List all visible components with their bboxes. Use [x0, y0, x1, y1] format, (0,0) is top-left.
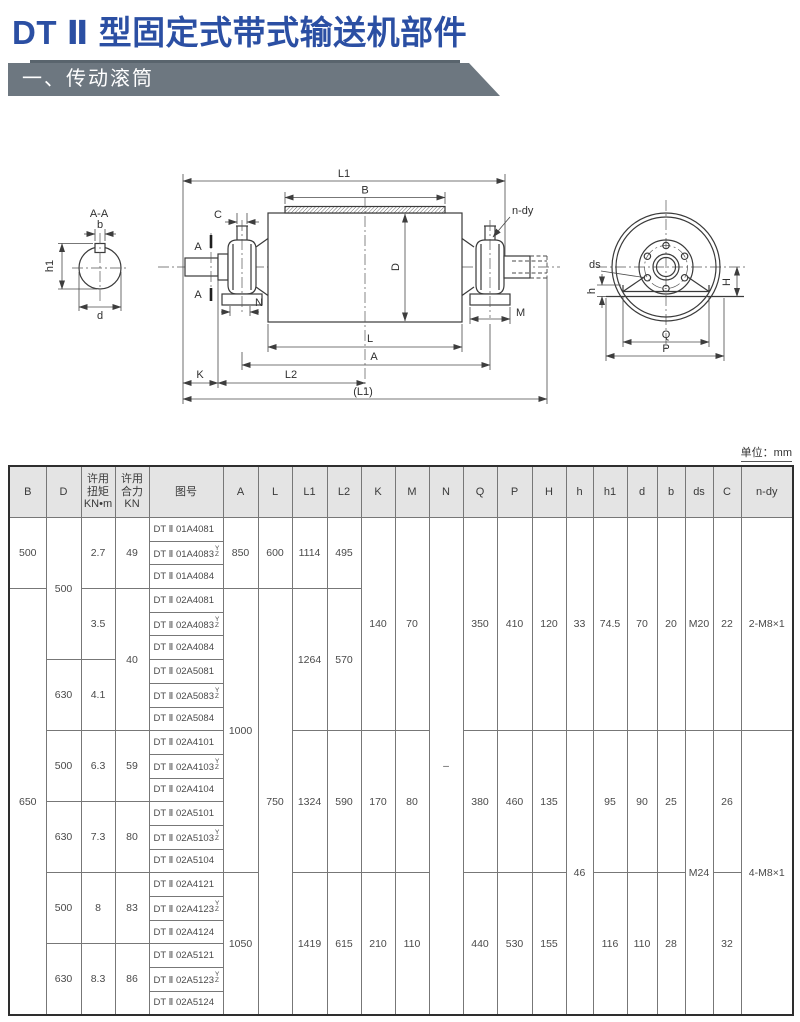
unit-note: 单位：mm: [741, 444, 792, 462]
drawing-number-cell: DT Ⅱ 02A5083YZ: [149, 683, 223, 707]
col-header-M: M: [395, 466, 429, 518]
drawing-number-cell: DT Ⅱ 02A4103YZ: [149, 754, 223, 778]
drawing-number-cell: DT Ⅱ 02A5103YZ: [149, 825, 223, 849]
drawing-number-cell: DT Ⅱ 02A4104: [149, 778, 223, 802]
cell-L: 600: [258, 518, 292, 589]
section-mark-top: A: [194, 241, 202, 253]
cell-K: 210: [361, 873, 395, 1015]
col-header-h: h: [566, 466, 593, 518]
cell-N: –: [429, 518, 463, 1015]
drawing-number-cell: DT Ⅱ 02A4124: [149, 920, 223, 944]
cell-h1: 116: [593, 873, 627, 1015]
dim-label-Q: Q: [662, 329, 671, 341]
drawing-number-cell: DT Ⅱ 01A4084: [149, 565, 223, 589]
cell-H: 135: [532, 731, 566, 873]
cell-H: 120: [532, 518, 566, 731]
cell-h1: 74.5: [593, 518, 627, 731]
dim-label-h: h: [586, 288, 598, 294]
drawing-number-cell: DT Ⅱ 02A5124: [149, 991, 223, 1015]
drum-body: [268, 213, 462, 322]
cell-H: 155: [532, 873, 566, 1015]
cell-force: 83: [115, 873, 149, 944]
drawing-number-suffix: YZ: [215, 901, 219, 913]
drawing-number-cell: DT Ⅱ 01A4081: [149, 518, 223, 542]
drawing-number-cell: DT Ⅱ 02A5123YZ: [149, 968, 223, 992]
cell-torque: 8.3: [81, 944, 115, 1015]
drawing-number-suffix: YZ: [215, 688, 219, 700]
dim-label-d: d: [97, 310, 103, 322]
cell-D: 500: [46, 731, 81, 802]
drawing-number-cell: DT Ⅱ 02A4101: [149, 731, 223, 755]
dim-label-C: C: [214, 209, 222, 221]
cell-L1: 1324: [292, 731, 327, 873]
cell-L1: 1264: [292, 589, 327, 731]
dim-label-N: N: [255, 297, 263, 309]
cell-force: 86: [115, 944, 149, 1015]
drawing-number-cell: DT Ⅱ 02A4121: [149, 873, 223, 897]
col-header-d: d: [627, 466, 657, 518]
col-header-C: C: [713, 466, 741, 518]
col-header-h1: h1: [593, 466, 627, 518]
dim-label-n-dy: n-dy: [512, 205, 534, 217]
cell-Q: 350: [463, 518, 497, 731]
cell-B: 650: [9, 589, 46, 1015]
cell-P: 410: [497, 518, 532, 731]
col-header-L: L: [258, 466, 292, 518]
cell-D: 500: [46, 518, 81, 660]
drawing-number-cell: DT Ⅱ 02A4081: [149, 589, 223, 613]
cell-L2: 495: [327, 518, 361, 589]
col-header-Q: Q: [463, 466, 497, 518]
dim-label-H: H: [721, 278, 733, 286]
cell-b: 20: [657, 518, 685, 731]
col-header-L2: L2: [327, 466, 361, 518]
cell-b: 28: [657, 873, 685, 1015]
drawing-number-suffix: YZ: [215, 617, 219, 629]
drawing-number-suffix: YZ: [215, 972, 219, 984]
cell-A: 850: [223, 518, 258, 589]
col-header-P: P: [497, 466, 532, 518]
cell-Q: 440: [463, 873, 497, 1015]
dim-label-b: b: [97, 219, 103, 231]
dim-label-D: D: [390, 263, 402, 271]
cell-torque: 8: [81, 873, 115, 944]
cell-D: 630: [46, 802, 81, 873]
col-header-torque: 许用扭矩KN•m: [81, 466, 115, 518]
table-row: 5005002.749DT Ⅱ 01A408185060011144951407…: [9, 518, 793, 542]
col-header-K: K: [361, 466, 395, 518]
dim-label-P: P: [662, 343, 669, 355]
cell-n_dy: 2-M8×1: [741, 518, 793, 731]
cell-B: 500: [9, 518, 46, 589]
dim-label-L: L: [367, 333, 373, 345]
end-view: h H ds Q P: [586, 200, 748, 361]
col-header-fig: 图号: [149, 466, 223, 518]
col-header-b: b: [657, 466, 685, 518]
cell-torque: 4.1: [81, 660, 115, 731]
drawing-number-cell: DT Ⅱ 02A4083YZ: [149, 612, 223, 636]
cell-P: 460: [497, 731, 532, 873]
cell-D: 500: [46, 873, 81, 944]
section-mark-bottom: A: [194, 289, 202, 301]
main-view: L1 B D: [158, 168, 560, 404]
col-header-n_dy: n-dy: [741, 466, 793, 518]
cell-torque: 7.3: [81, 802, 115, 873]
drawing-number-cell: DT Ⅱ 02A5084: [149, 707, 223, 731]
cell-h: 33: [566, 518, 593, 731]
drawing-number-cell: DT Ⅱ 02A4084: [149, 636, 223, 660]
cell-torque: 6.3: [81, 731, 115, 802]
cell-h: 46: [566, 731, 593, 1015]
col-header-ds: ds: [685, 466, 713, 518]
dim-label-h1: h1: [44, 260, 56, 272]
cell-d: 70: [627, 518, 657, 731]
cell-force: 40: [115, 589, 149, 731]
table-row: 500883DT Ⅱ 02A41211050141961521011044053…: [9, 873, 793, 897]
cell-Q: 380: [463, 731, 497, 873]
col-header-L1: L1: [292, 466, 327, 518]
dim-label-A: A: [370, 351, 378, 363]
col-header-force: 许用合力KN: [115, 466, 149, 518]
cell-K: 140: [361, 518, 395, 731]
technical-drawing: A-A b h1 d: [0, 0, 800, 460]
cell-force: 80: [115, 802, 149, 873]
cell-K: 170: [361, 731, 395, 873]
cell-d: 90: [627, 731, 657, 873]
drawing-number-suffix: YZ: [215, 759, 219, 771]
cell-M: 110: [395, 873, 429, 1015]
dim-label-L1: L1: [338, 168, 350, 180]
cell-d: 110: [627, 873, 657, 1015]
cell-ds: M24: [685, 731, 713, 1015]
shaft-right: [504, 256, 530, 278]
cell-L2: 570: [327, 589, 361, 731]
catalog-page: DT Ⅱ 型固定式带式输送机部件 一、传动滚筒 A-A: [0, 0, 800, 1022]
cell-M: 80: [395, 731, 429, 873]
dim-label-M: M: [516, 307, 525, 319]
cell-L1: 1419: [292, 873, 327, 1015]
dim-label-K: K: [196, 369, 204, 381]
col-header-H: H: [532, 466, 566, 518]
dim-label-L1-paren: (L1): [353, 386, 373, 398]
cell-b: 25: [657, 731, 685, 873]
cell-A: 1050: [223, 873, 258, 1015]
col-header-D: D: [46, 466, 81, 518]
cell-D: 630: [46, 944, 81, 1015]
cell-ds: M20: [685, 518, 713, 731]
dim-label-L2: L2: [285, 369, 297, 381]
col-header-A: A: [223, 466, 258, 518]
col-header-N: N: [429, 466, 463, 518]
cell-L2: 590: [327, 731, 361, 873]
drawing-number-cell: DT Ⅱ 02A5104: [149, 849, 223, 873]
cell-force: 59: [115, 731, 149, 802]
cell-D: 630: [46, 660, 81, 731]
cell-L2: 615: [327, 873, 361, 1015]
cell-A: 1000: [223, 589, 258, 873]
shaft-left: [185, 258, 218, 276]
cell-torque: 2.7: [81, 518, 115, 589]
spec-table: BD许用扭矩KN•m许用合力KN图号ALL1L2KMNQPHhh1dbdsCn-…: [8, 465, 794, 1016]
drawing-number-cell: DT Ⅱ 02A5101: [149, 802, 223, 826]
dim-label-B: B: [361, 185, 368, 197]
cell-C: 22: [713, 518, 741, 731]
cell-C: 32: [713, 873, 741, 1015]
cell-torque: 3.5: [81, 589, 115, 660]
cell-C: 26: [713, 731, 741, 873]
drawing-number-cell: DT Ⅱ 02A5081: [149, 660, 223, 684]
cell-P: 530: [497, 873, 532, 1015]
dim-label-ds: ds: [589, 259, 601, 271]
cell-L1: 1114: [292, 518, 327, 589]
cell-L: 750: [258, 589, 292, 1015]
cell-M: 70: [395, 518, 429, 731]
cell-n_dy: 4-M8×1: [741, 731, 793, 1015]
drawing-number-cell: DT Ⅱ 02A5121: [149, 944, 223, 968]
drawing-number-suffix: YZ: [215, 830, 219, 842]
cell-force: 49: [115, 518, 149, 589]
drawing-number-cell: DT Ⅱ 01A4083YZ: [149, 541, 223, 565]
table-row: 5006.359DT Ⅱ 02A410113245901708038046013…: [9, 731, 793, 755]
drawing-number-suffix: YZ: [215, 546, 219, 558]
section-view-aa: A-A b h1 d: [44, 208, 128, 322]
drawing-number-cell: DT Ⅱ 02A4123YZ: [149, 897, 223, 921]
cell-h1: 95: [593, 731, 627, 873]
col-header-B: B: [9, 466, 46, 518]
